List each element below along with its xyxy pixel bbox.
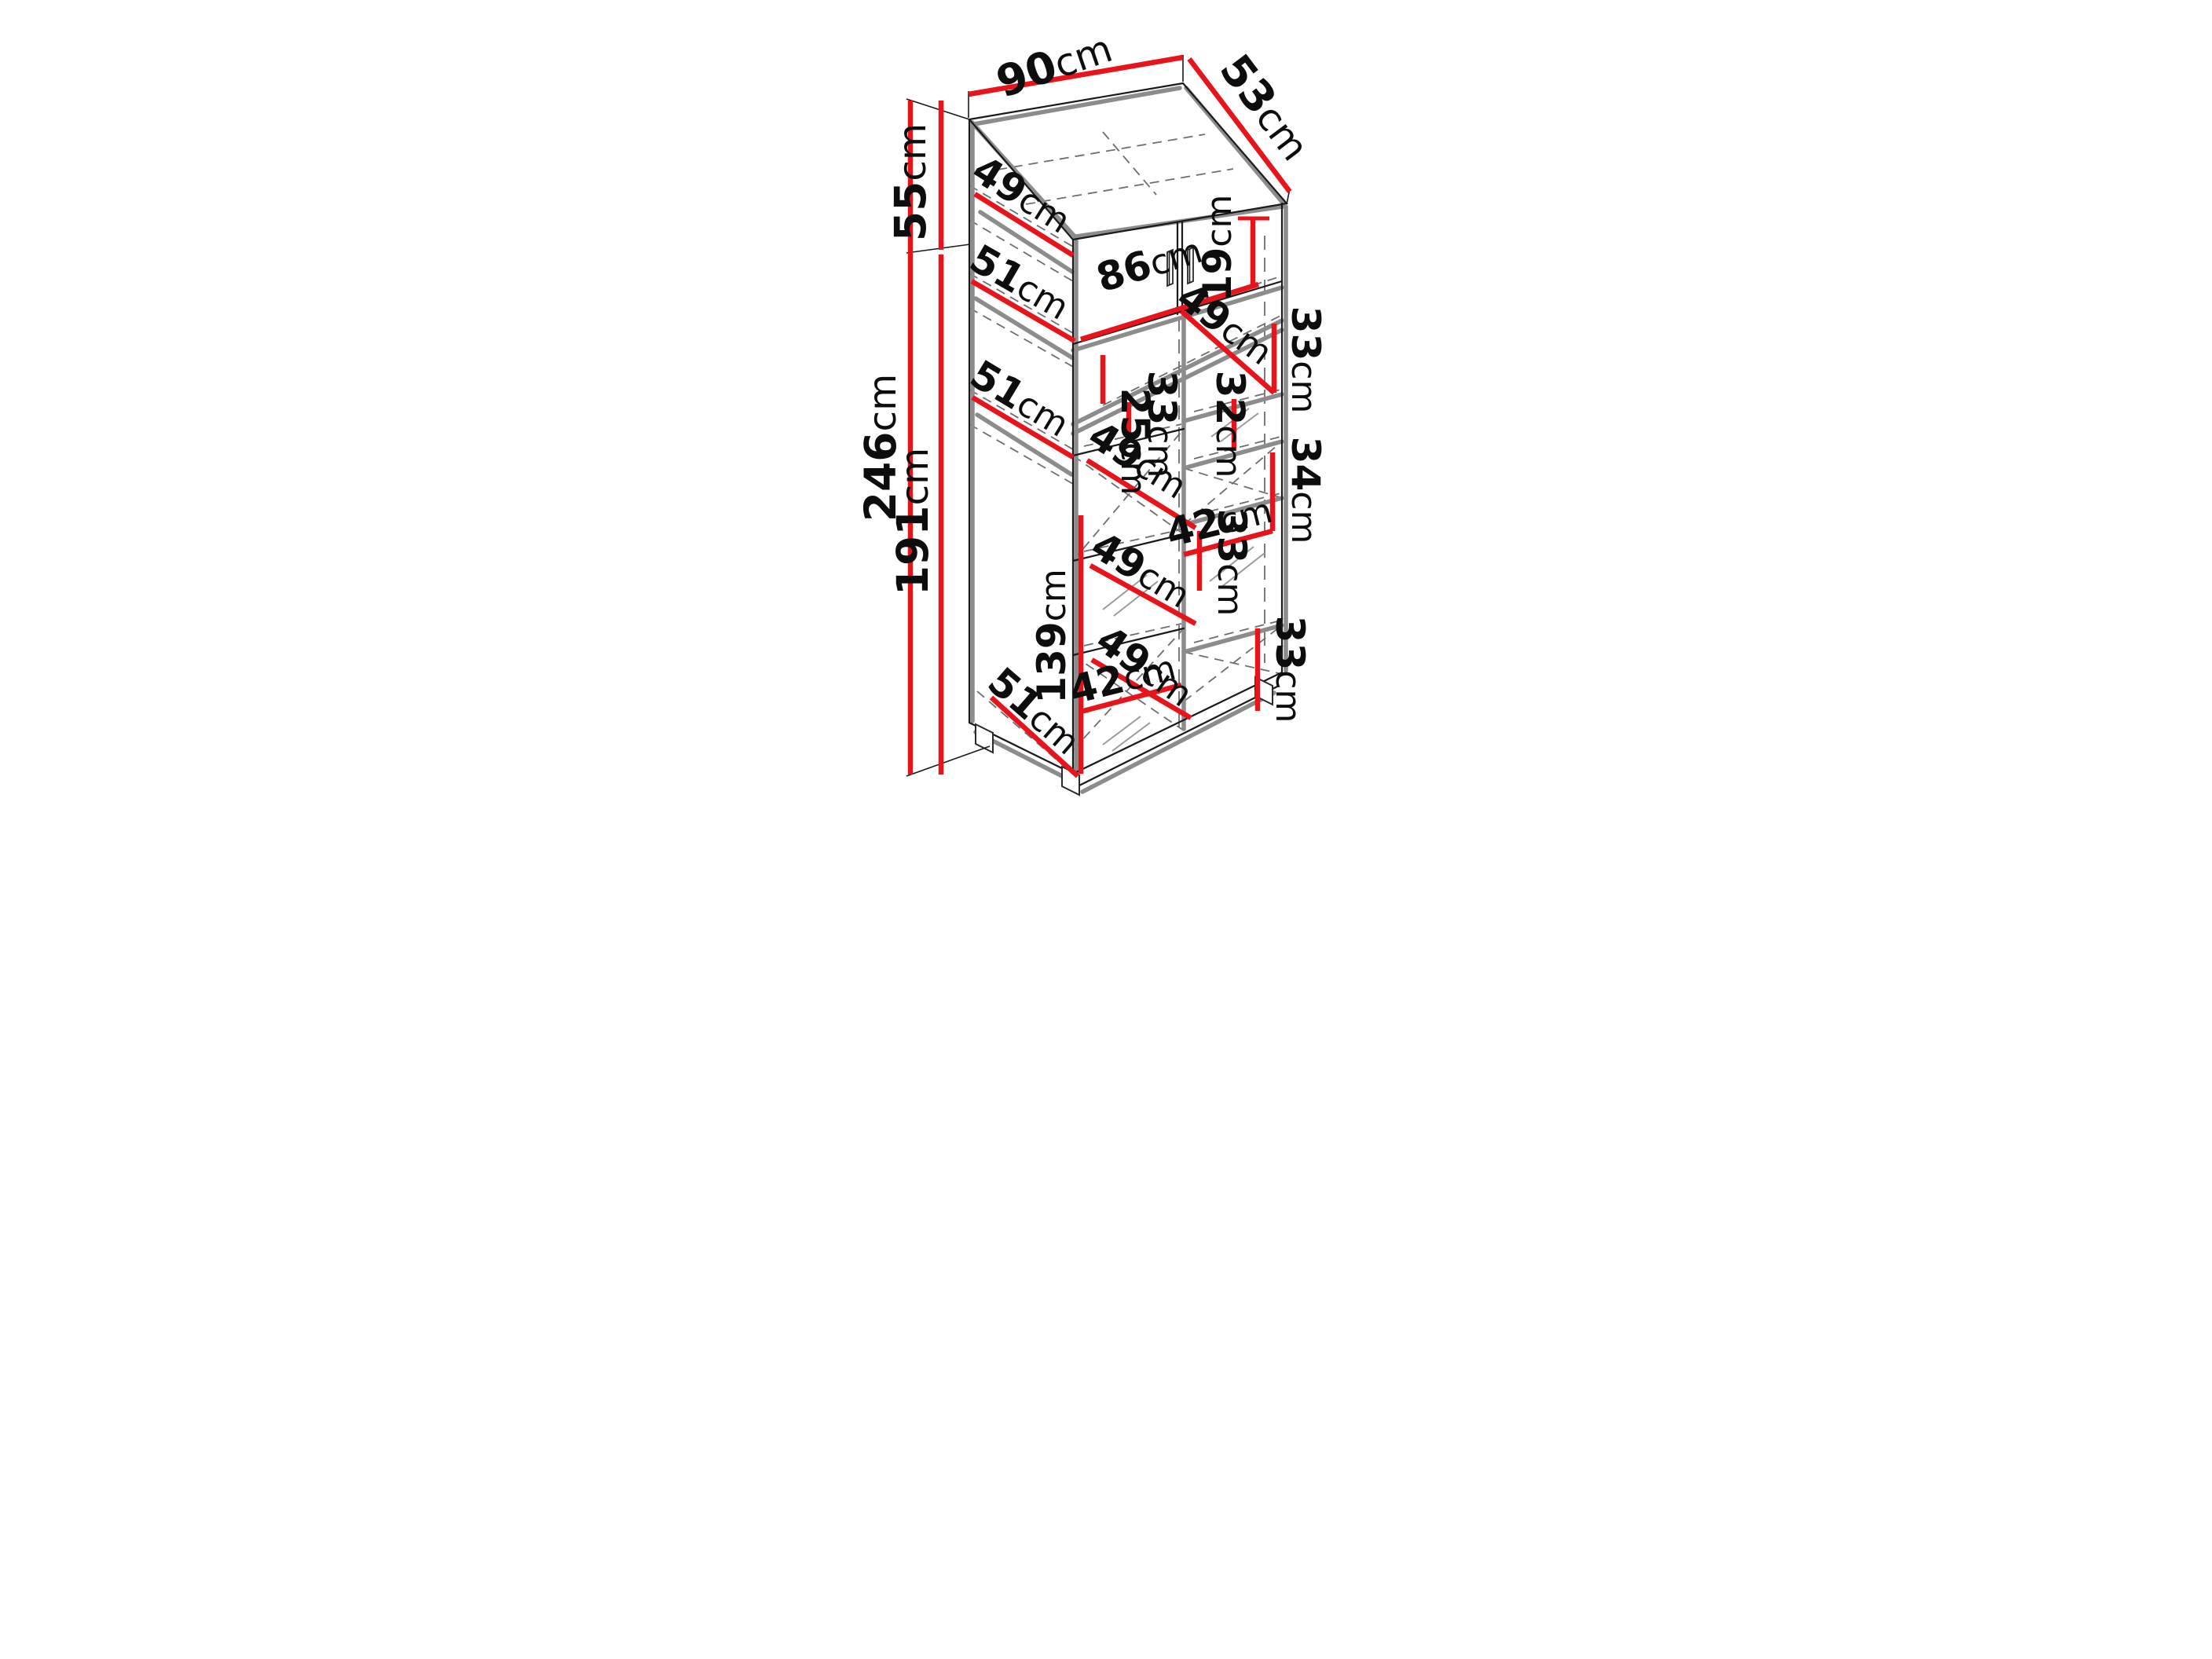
diagram-stage: 90cm 53cm 55cm 246cm 191cm 49cm 51cm 51c… (553, 0, 1659, 829)
dim-label-top-width: 90cm (990, 21, 1118, 107)
dim-label-right-col-34: 34cm (1283, 437, 1328, 544)
dim-label-left-upper: 55cm (885, 123, 936, 241)
dim-label-left-col-139: 139cm (1029, 569, 1075, 703)
dim-label-right-col-33-bot: 33cm (1267, 616, 1313, 723)
dim-label-right-col-32: 32cm (1207, 371, 1253, 478)
dim-label-side-51-mid: 51cm (962, 351, 1078, 445)
dim-label-left-lower: 191cm (888, 448, 938, 596)
wardrobe-dimension-diagram: 90cm 53cm 55cm 246cm 191cm 49cm 51cm 51c… (553, 0, 1659, 829)
dim-label-right-col-33-mid: 33cm (1209, 509, 1254, 617)
dim-label-right-col-33-top: 33cm (1283, 306, 1328, 414)
dim-label-side-49: 49cm (965, 147, 1080, 243)
